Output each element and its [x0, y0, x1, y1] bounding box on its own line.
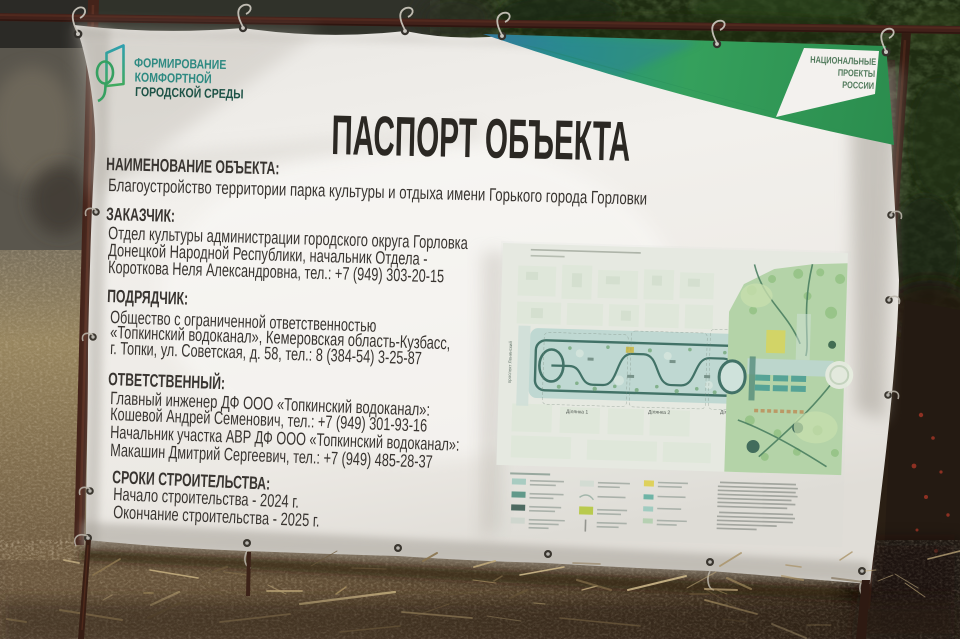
svg-text:ГОРОДСКОЙ СРЕДЫ: ГОРОДСКОЙ СРЕДЫ	[135, 84, 244, 102]
svg-text:НАЦИОНАЛЬНЫЕ: НАЦИОНАЛЬНЫЕ	[810, 54, 877, 67]
svg-text:ПРОЕКТЫ: ПРОЕКТЫ	[838, 67, 876, 79]
svg-text:РОССИИ: РОССИИ	[842, 79, 874, 91]
svg-text:ПОДРЯДЧИК:: ПОДРЯДЧИК:	[107, 287, 189, 310]
svg-text:ПАСПОРТ ОБЪЕКТА: ПАСПОРТ ОБЪЕКТА	[331, 104, 631, 173]
